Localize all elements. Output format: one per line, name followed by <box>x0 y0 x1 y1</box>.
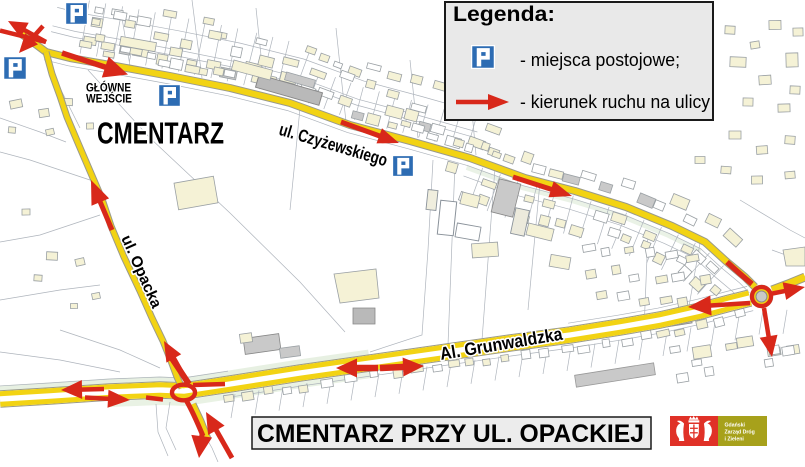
svg-text:Zarząd Dróg: Zarząd Dróg <box>725 430 755 436</box>
svg-text:i Zieleni: i Zieleni <box>725 437 745 443</box>
svg-text:WEJŚCIE: WEJŚCIE <box>86 91 132 106</box>
svg-text:- kierunek ruchu na ulicy: - kierunek ruchu na ulicy <box>520 92 710 112</box>
svg-text:Legenda:: Legenda: <box>453 2 555 26</box>
svg-text:Gdański: Gdański <box>725 423 746 429</box>
svg-text:- miejsca postojowe;: - miejsca postojowe; <box>520 50 680 70</box>
svg-text:CMENTARZ PRZY UL. OPACKIEJ: CMENTARZ PRZY UL. OPACKIEJ <box>257 420 644 448</box>
svg-text:CMENTARZ: CMENTARZ <box>97 116 224 151</box>
